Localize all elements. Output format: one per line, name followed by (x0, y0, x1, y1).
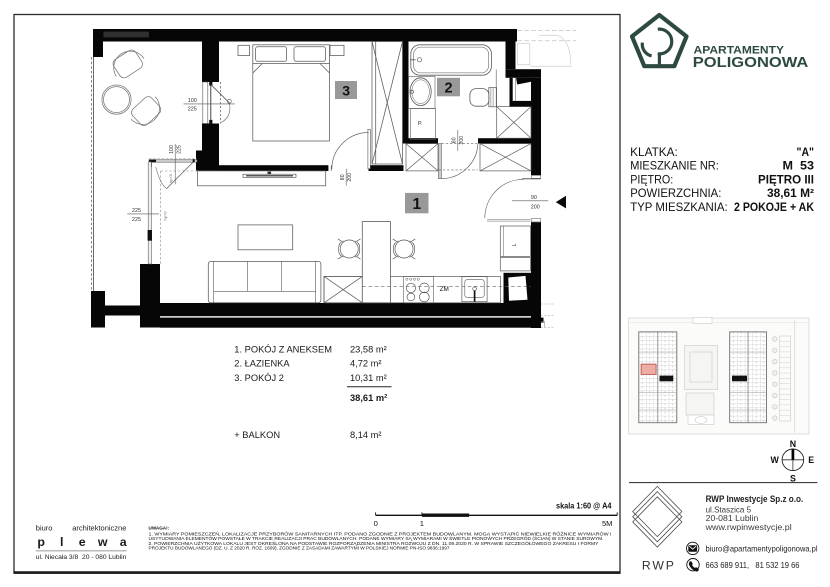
svg-text:2 POKOJE + AK: 2 POKOJE + AK (734, 201, 815, 214)
svg-text:1: 1 (420, 519, 424, 528)
svg-text:200: 200 (347, 173, 353, 182)
svg-text:663 689 911, 81 532 19 66: 663 689 911, 81 532 19 66 (706, 560, 800, 570)
svg-text:4,72 m²: 4,72 m² (350, 359, 382, 369)
svg-text:38,61 M²: 38,61 M² (767, 187, 814, 200)
svg-text:225: 225 (132, 217, 141, 223)
svg-text:5M: 5M (602, 519, 613, 528)
svg-text:RWP: RWP (642, 559, 676, 573)
svg-text:UWAGA!:: UWAGA!: (149, 525, 170, 530)
svg-text:0: 0 (374, 519, 378, 528)
svg-text:biuro: biuro (36, 523, 53, 532)
svg-text:E: E (808, 455, 814, 465)
svg-text:l: l (60, 535, 63, 549)
svg-text:PIĘTRO:: PIĘTRO: (630, 173, 673, 186)
svg-text:hp=0: hp=0 (168, 173, 173, 183)
svg-text:TYP MIESZKANIA:: TYP MIESZKANIA: (630, 201, 728, 214)
svg-text:PIĘTRO III: PIĘTRO III (758, 173, 814, 186)
svg-text:90: 90 (531, 195, 537, 201)
svg-text:www.rwpinwestycje.pl: www.rwpinwestycje.pl (705, 522, 792, 532)
svg-text:23,58 m²: 23,58 m² (350, 344, 387, 354)
svg-text:MIESZKANIE NR:: MIESZKANIE NR: (630, 160, 719, 173)
svg-text:PROJEKTU BUDOWLANEGO (DZ. U. Z: PROJEKTU BUDOWLANEGO (DZ. U. Z 2020 R. R… (149, 546, 451, 551)
svg-text:POWIERZCHNIA:: POWIERZCHNIA: (630, 187, 721, 200)
svg-text:200: 200 (459, 136, 465, 145)
svg-text:w: w (97, 535, 108, 549)
svg-text:100: 100 (188, 98, 197, 104)
svg-text:38,61 m²: 38,61 m² (350, 393, 387, 403)
svg-text:N: N (790, 439, 796, 449)
svg-text:a: a (120, 535, 127, 549)
svg-text:225: 225 (177, 145, 183, 154)
svg-text:10,31 m²: 10,31 m² (350, 373, 387, 383)
svg-text:p: p (37, 535, 45, 549)
svg-text:1. POKÓJ Z ANEKSEM: 1. POKÓJ Z ANEKSEM (234, 344, 332, 354)
svg-text:architektoniczne: architektoniczne (72, 523, 126, 532)
svg-text:P.: P. (418, 121, 422, 127)
svg-text:+ BALKON: + BALKON (234, 430, 280, 440)
svg-text:biuro@apartamentypoligonowa.pl: biuro@apartamentypoligonowa.pl (706, 544, 818, 554)
svg-text:1: 1 (412, 196, 421, 213)
svg-text:POLIGONOWA: POLIGONOWA (693, 54, 809, 71)
svg-text:80: 80 (340, 174, 346, 180)
svg-text:RWP Inwestycje Sp.z o.o.: RWP Inwestycje Sp.z o.o. (706, 493, 804, 504)
svg-text:225: 225 (132, 208, 141, 214)
svg-text:225: 225 (188, 107, 197, 113)
svg-text:ul. Niecała 3/8 20 - 080 Lubl: ul. Niecała 3/8 20 - 080 Lublin (36, 554, 127, 561)
svg-text:M 53: M 53 (783, 160, 815, 173)
svg-text:8,14 m²: 8,14 m² (350, 430, 382, 440)
svg-text:KLATKA:: KLATKA: (630, 146, 678, 159)
svg-text:2. ŁAZIENKA: 2. ŁAZIENKA (234, 359, 290, 369)
svg-text:3. POKÓJ 2: 3. POKÓJ 2 (234, 373, 284, 383)
svg-text:3: 3 (342, 82, 350, 98)
svg-text:skala 1:60 @ A4: skala 1:60 @ A4 (556, 501, 612, 511)
svg-text:hp=0: hp=0 (163, 211, 168, 221)
svg-text:100: 100 (169, 145, 175, 154)
svg-text:"A": "A" (797, 146, 815, 159)
svg-text:ZM: ZM (440, 286, 449, 293)
svg-text:200: 200 (531, 205, 540, 211)
svg-text:W: W (770, 455, 779, 465)
svg-text:L: L (512, 243, 518, 246)
svg-text:80: 80 (452, 137, 458, 143)
svg-text:e: e (79, 535, 86, 549)
svg-text:2: 2 (445, 81, 453, 97)
